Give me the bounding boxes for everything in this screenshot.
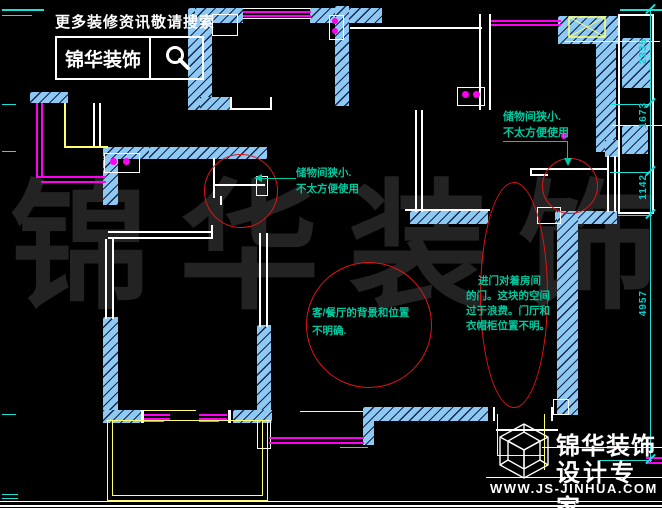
dimension-line <box>620 9 662 11</box>
stove-symbol <box>457 87 485 106</box>
search-button[interactable] <box>151 38 202 78</box>
window-glass <box>491 24 561 26</box>
company-logo-block: 锦华装饰 设计专家 WWW.JS-JINHUA.COM <box>486 420 662 504</box>
wall-line <box>108 231 213 233</box>
wall-line <box>266 233 268 327</box>
annotation-living-line2: 不明确. <box>312 324 346 339</box>
leader-arrow <box>250 174 262 182</box>
wall-segment <box>557 211 578 415</box>
floorplan-canvas: 锦 华 装 饰 <box>0 0 662 508</box>
dimension-label: 4957 <box>638 290 649 316</box>
dimension-label: 1673 <box>638 102 649 128</box>
annotation-entry-line2: 的门。这块的空间 <box>466 289 550 304</box>
brand-name: 锦华装饰 <box>57 38 151 78</box>
wall-line <box>105 239 107 319</box>
window-frame <box>243 18 311 19</box>
window-glass <box>144 414 170 416</box>
furniture-line <box>144 410 196 411</box>
wall-line <box>607 156 609 212</box>
annotation-living-line1: 客/餐厅的背景和位置 <box>312 306 409 321</box>
dimension-line <box>2 104 16 105</box>
burner-icon <box>473 91 480 98</box>
furniture-line <box>612 125 662 126</box>
furniture-line <box>64 103 66 147</box>
company-url: WWW.JS-JINHUA.COM <box>490 481 658 496</box>
dimension-label: 1142 <box>638 174 649 200</box>
wall-segment <box>622 126 648 154</box>
window-glass <box>41 103 43 178</box>
wall-segment <box>363 407 374 445</box>
wall-segment <box>363 407 488 421</box>
appliance-icon <box>568 16 606 38</box>
door-jamb <box>493 407 495 421</box>
burner-icon <box>332 18 338 24</box>
window-glass <box>269 442 364 444</box>
dimension-line <box>199 421 219 422</box>
wall-line <box>489 14 491 110</box>
annotation-storage-left-line1: 储物间狭小. <box>296 166 351 181</box>
dimension-line <box>650 10 651 462</box>
furniture-line <box>64 146 108 148</box>
leader-line <box>503 141 568 142</box>
wall-segment <box>103 317 118 413</box>
wall-segment <box>410 211 488 224</box>
burner-icon <box>462 91 469 98</box>
annotation-storage-right-line2: 不太方便使用 <box>503 126 569 141</box>
wall-line <box>618 14 654 16</box>
window-glass <box>41 181 106 183</box>
wall-segment <box>30 92 68 103</box>
leader-arrow <box>564 158 572 170</box>
logo-divider <box>486 477 662 478</box>
wall-line <box>112 239 114 319</box>
door-jamb <box>270 97 272 110</box>
dimension-line <box>144 421 164 422</box>
dimension-line <box>2 151 16 152</box>
logo-divider <box>542 447 662 448</box>
window-glass <box>36 103 38 178</box>
balcony-outline <box>112 420 263 496</box>
wall-segment <box>200 97 230 110</box>
dimension-line <box>610 172 650 173</box>
dimension-line <box>2 15 32 16</box>
annotation-entry-line3: 过于浪费。门厅和 <box>466 304 550 319</box>
window-glass <box>199 414 227 416</box>
wall-line <box>614 156 616 212</box>
watermark-char: 锦 <box>10 168 150 332</box>
wall-line <box>405 209 490 211</box>
window-glass <box>36 176 106 178</box>
wall-line <box>350 27 482 29</box>
annotation-entry-line4: 衣帽柜位置不明。 <box>466 319 550 334</box>
window-frame <box>243 8 311 9</box>
dimension-label: 2335 <box>638 38 649 64</box>
annotation-entry-line1: 进门对着房间 <box>478 274 541 289</box>
wall-line <box>93 103 95 148</box>
wall-segment <box>605 140 618 157</box>
search-box[interactable]: 锦华装饰 <box>55 36 204 80</box>
burner-icon <box>123 158 130 165</box>
burner-icon <box>332 28 338 34</box>
furniture-line <box>300 411 363 412</box>
column-symbol <box>553 399 569 415</box>
dimension-line <box>2 9 44 11</box>
cube-logo-icon <box>496 422 552 480</box>
wall-segment <box>257 325 271 413</box>
burner-icon <box>110 158 117 165</box>
leader-line <box>258 178 296 179</box>
wall-line <box>211 225 213 239</box>
wall-segment <box>596 28 616 152</box>
closet-symbol <box>212 14 238 36</box>
dimension-line <box>340 447 368 448</box>
dimension-line <box>2 494 18 495</box>
wall-line <box>108 237 213 239</box>
window-glass <box>491 20 561 22</box>
branding-tagline: 更多装修资讯敬请搜索 <box>55 11 215 32</box>
wall-line <box>259 233 261 327</box>
annotation-storage-right-line1: 储物间狭小. <box>503 110 561 125</box>
window-glass <box>269 437 364 439</box>
issue-circle-storage-left <box>204 154 278 228</box>
wall-line <box>652 14 654 214</box>
search-icon <box>163 44 191 72</box>
wall-line <box>421 110 423 212</box>
annotation-storage-left-line2: 不太方便使用 <box>296 182 359 197</box>
door-leaf <box>230 108 272 110</box>
window-glass <box>243 15 311 17</box>
wall-line <box>415 110 417 212</box>
dimension-line <box>2 414 16 415</box>
dimension-line <box>2 498 18 499</box>
wall-line <box>99 103 101 148</box>
wall-line <box>618 14 620 214</box>
window-glass <box>243 11 311 13</box>
shelf-line <box>530 168 532 176</box>
